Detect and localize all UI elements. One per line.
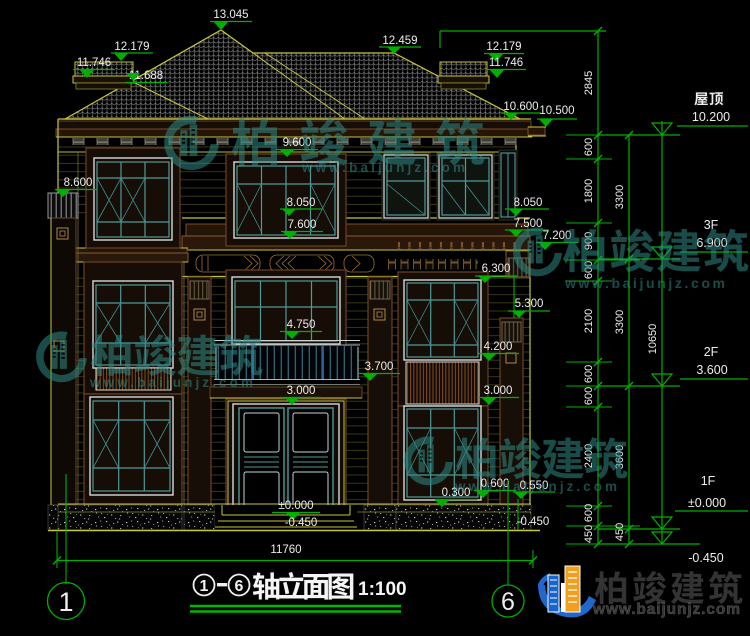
svg-text:2F: 2F bbox=[704, 345, 719, 359]
svg-text:12.179: 12.179 bbox=[486, 41, 521, 53]
svg-text:11.746: 11.746 bbox=[77, 57, 111, 69]
svg-text:600: 600 bbox=[583, 138, 595, 156]
svg-text:3.000: 3.000 bbox=[484, 385, 513, 397]
svg-text:600: 600 bbox=[583, 365, 595, 383]
svg-text:±0.000: ±0.000 bbox=[688, 496, 726, 510]
svg-text:10650: 10650 bbox=[647, 324, 659, 355]
svg-text:600: 600 bbox=[583, 504, 595, 522]
svg-text:±0.000: ±0.000 bbox=[278, 500, 313, 512]
svg-text:2845: 2845 bbox=[583, 71, 595, 95]
svg-text:1: 1 bbox=[58, 587, 73, 617]
svg-text:6.300: 6.300 bbox=[482, 263, 511, 275]
svg-text:10.600: 10.600 bbox=[503, 101, 538, 113]
svg-text:6: 6 bbox=[501, 588, 515, 616]
svg-text:7.600: 7.600 bbox=[288, 219, 317, 231]
svg-text:3300: 3300 bbox=[614, 185, 626, 209]
svg-text:11.746: 11.746 bbox=[489, 57, 523, 69]
svg-text:4.750: 4.750 bbox=[287, 319, 316, 331]
svg-text:1800: 1800 bbox=[583, 179, 595, 203]
svg-text:11760: 11760 bbox=[270, 544, 301, 556]
svg-text:-0.450: -0.450 bbox=[688, 551, 723, 565]
svg-text:10.200: 10.200 bbox=[692, 110, 730, 124]
svg-text:-0.450: -0.450 bbox=[517, 516, 550, 528]
svg-text:1F: 1F bbox=[701, 474, 716, 488]
svg-text:www.baijunjz.com: www.baijunjz.com bbox=[592, 601, 740, 618]
svg-text:1:100: 1:100 bbox=[358, 579, 407, 600]
svg-text:-0.450: -0.450 bbox=[285, 517, 318, 529]
svg-text:600: 600 bbox=[583, 387, 595, 405]
svg-text:3.600: 3.600 bbox=[696, 363, 727, 377]
svg-text:5.300: 5.300 bbox=[515, 298, 544, 310]
svg-text:1: 1 bbox=[200, 578, 209, 595]
svg-text:450: 450 bbox=[614, 523, 626, 541]
svg-text:4.200: 4.200 bbox=[484, 341, 513, 353]
svg-text:3300: 3300 bbox=[614, 310, 626, 334]
svg-text:3.000: 3.000 bbox=[287, 385, 316, 397]
svg-text:10.500: 10.500 bbox=[539, 105, 574, 117]
svg-text:3.700: 3.700 bbox=[365, 361, 394, 373]
svg-text:13.045: 13.045 bbox=[213, 9, 248, 21]
svg-text:8.050: 8.050 bbox=[514, 197, 543, 209]
svg-text:6: 6 bbox=[235, 578, 244, 595]
svg-text:12.179: 12.179 bbox=[114, 41, 149, 53]
svg-text:8.600: 8.600 bbox=[64, 177, 93, 189]
svg-text:12.459: 12.459 bbox=[382, 35, 417, 47]
svg-text:2100: 2100 bbox=[583, 309, 595, 333]
svg-text:450: 450 bbox=[583, 525, 595, 543]
svg-text:8.050: 8.050 bbox=[287, 197, 316, 209]
